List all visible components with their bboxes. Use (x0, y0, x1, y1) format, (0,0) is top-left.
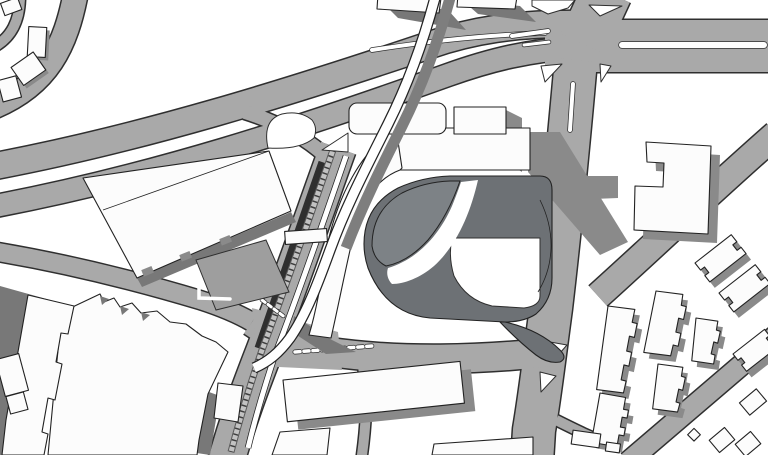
industrial-yard (48, 294, 228, 455)
l-shaped-building (634, 142, 720, 243)
bottom-edge-building (272, 428, 330, 455)
site-plan-svg (0, 0, 768, 455)
retail-pod (454, 107, 506, 134)
long-slab-building (283, 360, 475, 430)
foot-bridge (285, 229, 328, 245)
industrial-complex (0, 294, 228, 455)
bottom-edge-building (214, 383, 243, 422)
traffic-island (322, 133, 348, 152)
site-plan-map (0, 0, 768, 455)
landmark-podium (364, 176, 564, 362)
bottom-edge-building (432, 437, 533, 455)
small-building (6, 392, 28, 414)
small-building (27, 27, 47, 58)
top-edge-building (457, 0, 517, 9)
